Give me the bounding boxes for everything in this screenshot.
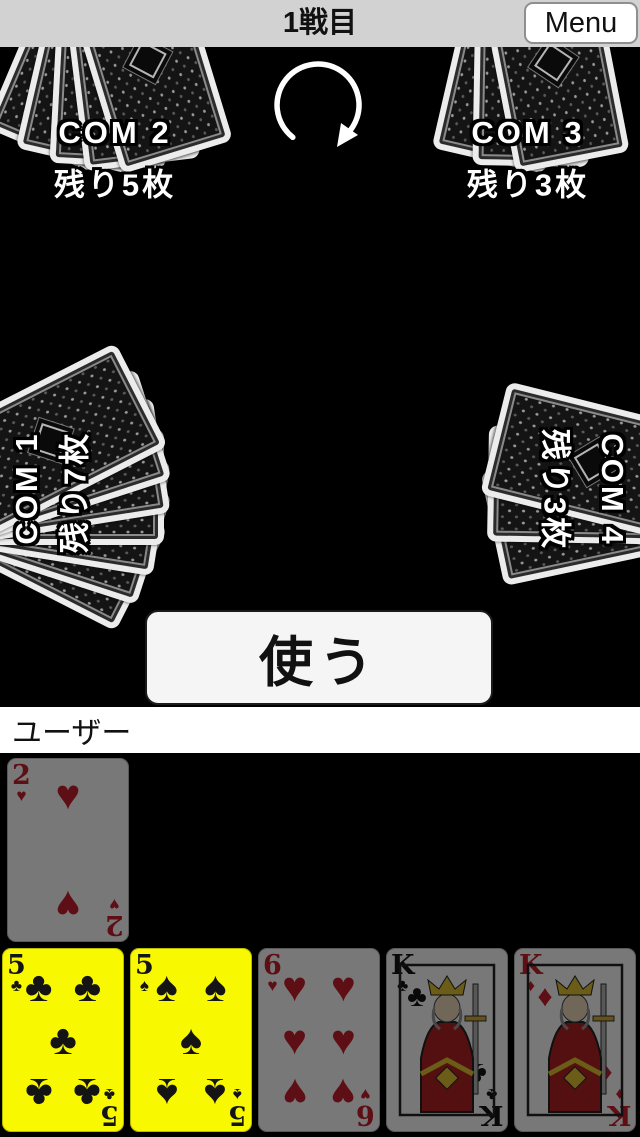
heart-icon: ♥ bbox=[267, 977, 277, 994]
card-index: 5♣ bbox=[100, 1086, 119, 1128]
hand-card-2-heart[interactable]: 2♥2♥♥♥ bbox=[7, 758, 129, 942]
card-index: 6♥ bbox=[356, 1086, 375, 1128]
game-screen: COM 2 残り5枚 COM 3 残り3枚 COM 1 残り7枚 COM 4 残… bbox=[0, 0, 640, 1137]
heart-icon: ♥ bbox=[16, 787, 26, 804]
pip-heart: ♥ bbox=[331, 966, 356, 1008]
pip-spade: ♠ bbox=[155, 1072, 177, 1114]
court-figure: ♦♦ bbox=[525, 962, 625, 1118]
opponent-name-com4: COM 4 bbox=[594, 433, 630, 546]
hand-card-5-club[interactable]: 5♣5♣♣♣♣♣♣ bbox=[2, 948, 124, 1132]
spade-icon: ♠ bbox=[140, 977, 149, 994]
svg-text:♦: ♦ bbox=[537, 980, 552, 1013]
pip-club: ♣ bbox=[74, 1072, 102, 1114]
heart-icon: ♥ bbox=[361, 1086, 371, 1103]
pip-club: ♣ bbox=[25, 966, 53, 1008]
card-index: 6♥ bbox=[263, 952, 282, 994]
pip-spade: ♠ bbox=[204, 966, 226, 1008]
opponent-remaining-com2: 残り5枚 bbox=[54, 160, 176, 205]
header: 1戦目 Menu bbox=[0, 0, 640, 47]
pip-club: ♣ bbox=[74, 966, 102, 1008]
pip-spade: ♠ bbox=[180, 1019, 202, 1061]
card-index: 5♠ bbox=[135, 952, 154, 994]
hand-card-6-heart[interactable]: 6♥6♥♥♥♥♥♥♥ bbox=[258, 948, 380, 1132]
pip-club: ♣ bbox=[25, 1072, 53, 1114]
club-icon: ♣ bbox=[104, 1086, 115, 1103]
opponent-name-com3: COM 3 bbox=[471, 115, 584, 151]
pip-club: ♣ bbox=[49, 1019, 77, 1061]
menu-button[interactable]: Menu bbox=[524, 2, 638, 44]
card-index: 5♠ bbox=[228, 1086, 247, 1128]
pip-heart: ♥ bbox=[282, 1019, 307, 1061]
opponent-remaining-com1: 残り7枚 bbox=[50, 431, 95, 553]
pip-spade: ♠ bbox=[204, 1072, 226, 1114]
hand-card-K-club[interactable]: K♣K♣♣♣ bbox=[386, 948, 508, 1132]
heart-icon: ♥ bbox=[110, 896, 120, 913]
opponent-remaining-com3: 残り3枚 bbox=[467, 160, 589, 205]
player-label: ユーザー bbox=[0, 708, 131, 752]
pip-heart: ♥ bbox=[282, 1072, 307, 1114]
pip-heart: ♥ bbox=[56, 884, 81, 926]
hand-card-K-diamond[interactable]: K♦K♦♦♦ bbox=[514, 948, 636, 1132]
player-label-strip: ユーザー bbox=[0, 707, 640, 753]
spade-icon: ♠ bbox=[233, 1086, 242, 1103]
svg-text:♣: ♣ bbox=[407, 980, 427, 1013]
court-figure: ♣♣ bbox=[397, 962, 497, 1118]
opponent-name-com1: COM 1 bbox=[9, 431, 45, 544]
opponent-name-com2: COM 2 bbox=[58, 115, 171, 151]
pip-heart: ♥ bbox=[331, 1072, 356, 1114]
card-index: 2♥ bbox=[12, 762, 31, 804]
pip-spade: ♠ bbox=[155, 966, 177, 1008]
card-index: 2♥ bbox=[105, 896, 124, 938]
club-icon: ♣ bbox=[11, 977, 22, 994]
pip-heart: ♥ bbox=[282, 966, 307, 1008]
use-button[interactable]: 使う bbox=[145, 610, 493, 705]
opponent-remaining-com4: 残り3枚 bbox=[536, 429, 581, 551]
hand-card-5-spade[interactable]: 5♠5♠♠♠♠♠♠ bbox=[130, 948, 252, 1132]
card-index: 5♣ bbox=[7, 952, 26, 994]
pip-heart: ♥ bbox=[56, 774, 81, 816]
turn-direction-icon bbox=[261, 45, 381, 165]
pip-heart: ♥ bbox=[331, 1019, 356, 1061]
